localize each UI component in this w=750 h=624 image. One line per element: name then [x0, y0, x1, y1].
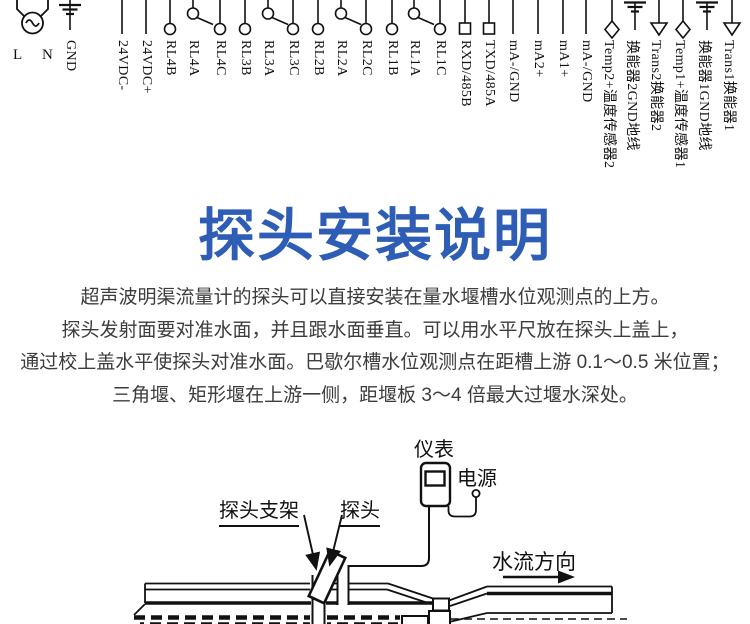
intro-line: 探头发射面要对准水面，并且跟水面垂直。可以用水平尺放在探头上盖上，: [0, 315, 750, 348]
channel-left-section: [134, 584, 433, 616]
terminal-label: GND: [62, 40, 78, 72]
channel-right-section: [451, 587, 627, 620]
probe-bracket-label: 探头支架: [219, 494, 299, 527]
terminal-label: RL2C: [358, 40, 374, 76]
terminal-label: mA-/GND: [578, 40, 594, 103]
terminal-label: RL4C: [212, 40, 228, 76]
terminal-label: Trans1换能器1: [720, 40, 740, 131]
terminal-labels: GND24VDC-24VDC+RL4BRL4ARL4CRL3BRL3ARL3CR…: [0, 0, 750, 190]
terminal-label: 24VDC-: [114, 40, 130, 91]
page-title: 探头安装说明: [0, 190, 750, 272]
terminal-label: mA1+: [555, 40, 571, 78]
terminal-label: RL2A: [333, 40, 349, 77]
terminal-label: RL3B: [237, 40, 253, 76]
terminal-label: RL3A: [260, 40, 276, 77]
terminal-label: RL1A: [406, 40, 422, 77]
terminal-label: mA-/GND: [505, 40, 521, 103]
flow-direction-label: 水流方向: [492, 546, 576, 576]
terminal-label: RL4B: [162, 40, 178, 76]
terminal-label: RL3C: [285, 40, 301, 76]
intro-line: 通过校上盖水平使探头对准水面。巴歇尔槽水位观测点在距槽上游 0.1～0.5 米位…: [0, 347, 750, 380]
terminal-label: 24VDC+: [138, 40, 154, 94]
intro-line: 三角堰、矩形堰在上游一侧，距堰板 3～4 倍最大过堰水深处。: [0, 380, 750, 413]
probe-label: 探头: [340, 494, 380, 527]
meter-icon: [421, 463, 450, 506]
power-plug-icon: [449, 490, 480, 517]
intro-line: 超声波明渠流量计的探头可以直接安装在量水堰槽水位观测点的上方。: [0, 282, 750, 315]
terminal-label: RL1B: [384, 40, 400, 76]
terminal-label: RL4A: [185, 40, 201, 77]
terminal-label: TXD/485A: [481, 40, 497, 107]
terminal-label: RL1C: [432, 40, 448, 76]
terminal-label: mA2+: [530, 40, 546, 78]
power-label: 电源: [457, 462, 497, 491]
intro-paragraph: 超声波明渠流量计的探头可以直接安装在量水堰槽水位观测点的上方。 探头发射面要对准…: [0, 282, 750, 412]
installation-diagram: 仪表 电源 探头支架 探头 水流方向: [0, 425, 750, 624]
ground-hatch: [134, 618, 400, 624]
terminal-label: 换能器2GND地线: [623, 40, 643, 151]
manual-page: L N GND24VDC-24VDC+RL4BRL4ARL4CRL3BRL3AR…: [0, 0, 750, 624]
terminal-label: Temp1+温度传感器1: [671, 40, 691, 168]
terminal-label: RXD/485B: [457, 40, 473, 107]
terminal-label: 换能器1GND地线: [695, 40, 715, 151]
terminal-label: Trans2换能器2: [647, 40, 667, 131]
meter-label: 仪表: [414, 433, 454, 462]
terminal-label: RL2B: [310, 40, 326, 76]
terminal-label: Temp2+温度传感器2: [600, 40, 620, 168]
